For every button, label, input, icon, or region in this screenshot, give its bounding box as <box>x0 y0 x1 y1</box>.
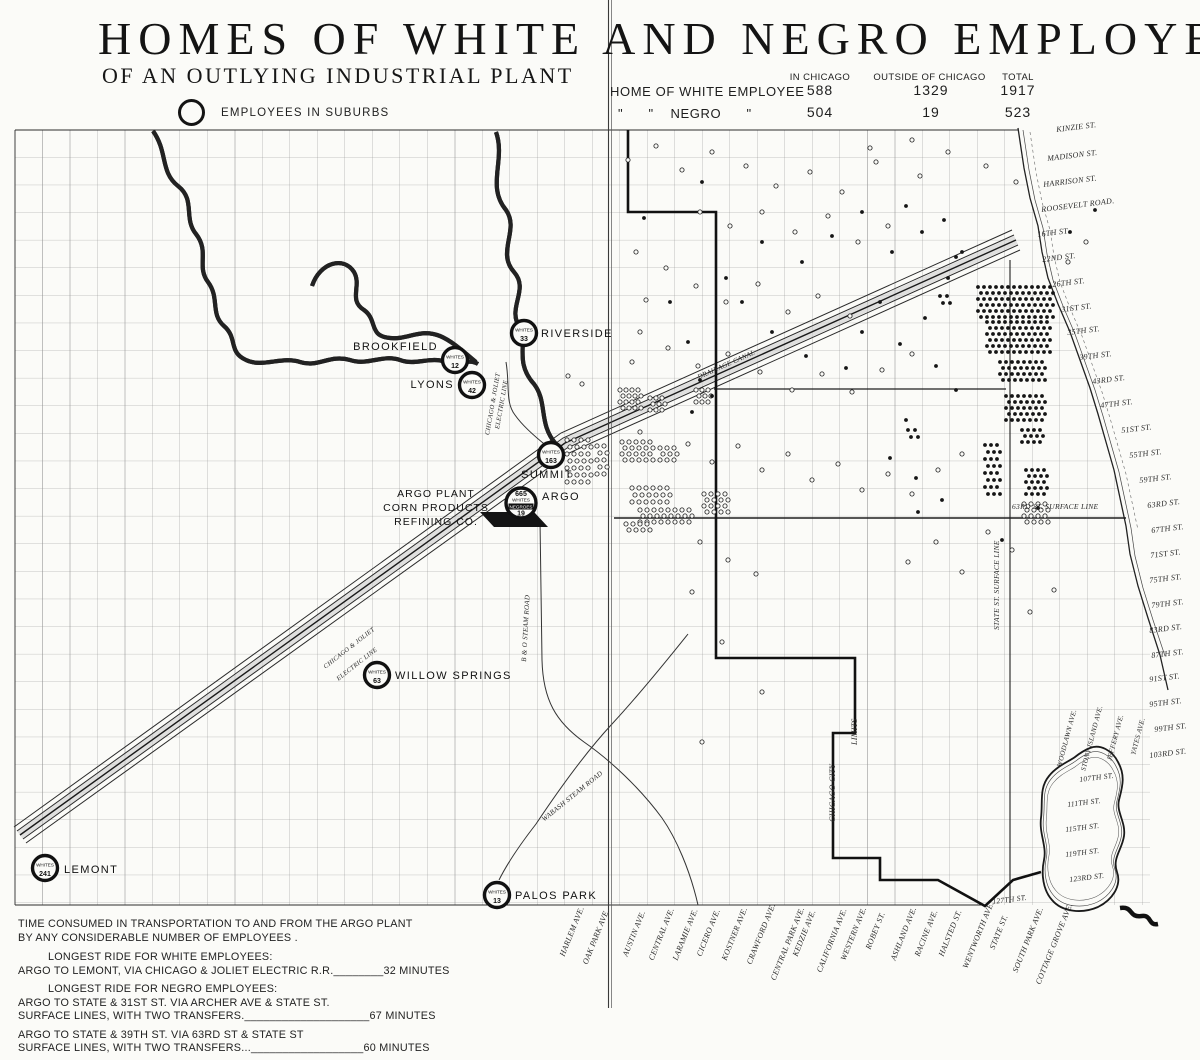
negro-employee-dot <box>989 471 993 475</box>
white-employee-dot <box>744 164 748 168</box>
line-label: STATE ST. SURFACE LINE <box>992 540 1002 630</box>
legend-label: EMPLOYEES IN SUBURBS <box>221 107 389 119</box>
negro-employee-dot <box>1037 400 1041 404</box>
negro-employee-dot <box>1030 297 1034 301</box>
negro-employee-dot <box>1024 338 1028 342</box>
negro-employee-dot <box>1039 303 1043 307</box>
negro-employee-dot <box>1009 320 1013 324</box>
white-employee-dot <box>760 468 764 472</box>
white-employee-dot <box>624 400 628 404</box>
negro-employee-dot <box>1039 332 1043 336</box>
white-employee-dot <box>673 520 677 524</box>
white-employee-dot <box>1084 240 1088 244</box>
negro-employee-dot <box>940 498 944 502</box>
negro-employee-dot <box>992 492 996 496</box>
white-employee-dot <box>774 184 778 188</box>
white-employee-dot <box>658 500 662 504</box>
white-employee-dot <box>639 406 643 410</box>
negro-employee-dot <box>1042 492 1046 496</box>
negro-employee-dot <box>1024 492 1028 496</box>
negro-employee-dot <box>770 330 774 334</box>
white-employee-dot <box>631 522 635 526</box>
negro-employee-dot <box>1040 406 1044 410</box>
negro-employee-dot <box>1000 285 1004 289</box>
white-employee-dot <box>934 540 938 544</box>
negro-employee-dot <box>1010 406 1014 410</box>
argo-negroes-label: NEGROES <box>510 504 533 509</box>
white-employee-dot <box>826 214 830 218</box>
negro-employee-dot <box>668 300 672 304</box>
white-employee-dot <box>1036 514 1040 518</box>
negro-employee-dot <box>1026 428 1030 432</box>
white-employee-dot <box>669 514 673 518</box>
negro-employee-dot <box>1018 297 1022 301</box>
white-employee-dot <box>709 504 713 508</box>
negro-employee-dot <box>1021 315 1025 319</box>
transportation-notes: TIME CONSUMED IN TRANSPORTATION TO AND F… <box>18 918 498 1056</box>
notes-line: ARGO TO STATE & 39TH ST. VIA 63RD ST & S… <box>18 1029 498 1043</box>
negro-employee-dot <box>1042 468 1046 472</box>
white-employee-dot <box>856 240 860 244</box>
suburb-count-label: WHITES <box>542 450 560 455</box>
negro-employee-dot <box>1009 332 1013 336</box>
white-employee-dot <box>623 458 627 462</box>
negro-employee-dot <box>1030 480 1034 484</box>
white-employee-dot <box>648 514 652 518</box>
negro-employee-dot <box>1019 412 1023 416</box>
white-employee-dot <box>624 388 628 392</box>
negro-employee-dot <box>1019 366 1023 370</box>
white-employee-dot <box>634 452 638 456</box>
negro-employee-dot <box>1019 378 1023 382</box>
negro-employee-dot <box>1033 332 1037 336</box>
negro-employee-dot <box>1001 378 1005 382</box>
negro-employee-dot <box>1042 350 1046 354</box>
white-employee-dot <box>624 522 628 526</box>
suburb-count: 63 <box>373 678 381 685</box>
white-employee-dot <box>644 298 648 302</box>
negro-employee-dot <box>1045 344 1049 348</box>
white-employee-dot <box>666 520 670 524</box>
white-employee-dot <box>786 310 790 314</box>
negro-employee-dot <box>740 300 744 304</box>
negro-employee-dot <box>994 297 998 301</box>
negro-employee-dot <box>724 276 728 280</box>
negro-employee-dot <box>1048 297 1052 301</box>
line-label: 63RD ST. SURFACE LINE <box>1012 502 1098 512</box>
negro-employee-dot <box>985 320 989 324</box>
negro-employee-dot <box>997 291 1001 295</box>
white-employee-dot <box>589 445 593 449</box>
negro-employee-dot <box>860 210 864 214</box>
negro-employee-dot <box>1001 366 1005 370</box>
white-employee-dot <box>626 158 630 162</box>
negro-employee-dot <box>1033 486 1037 490</box>
negro-employee-dot <box>1032 428 1036 432</box>
negro-employee-dot <box>1003 315 1007 319</box>
white-employee-dot <box>605 451 609 455</box>
white-employee-dot <box>582 459 586 463</box>
white-employee-dot <box>690 514 694 518</box>
white-employee-dot <box>910 138 914 142</box>
white-employee-dot <box>726 510 730 514</box>
negro-employee-dot <box>1000 297 1004 301</box>
negro-employee-dot <box>1009 315 1013 319</box>
negro-employee-dot <box>1042 326 1046 330</box>
white-employee-dot <box>836 462 840 466</box>
white-employee-dot <box>579 480 583 484</box>
negro-employee-dot <box>1045 486 1049 490</box>
white-employee-dot <box>960 570 964 574</box>
white-employee-dot <box>665 486 669 490</box>
negro-employee-dot <box>1036 309 1040 313</box>
negro-employee-dot <box>989 443 993 447</box>
white-employee-dot <box>726 558 730 562</box>
white-employee-dot <box>627 452 631 456</box>
negro-employee-dot <box>1012 326 1016 330</box>
white-employee-dot <box>655 514 659 518</box>
white-employee-dot <box>659 508 663 512</box>
negro-employee-dot <box>991 291 995 295</box>
negro-employee-dot <box>995 443 999 447</box>
suburb-count: 241 <box>39 871 51 878</box>
white-employee-dot <box>816 294 820 298</box>
negro-employee-dot <box>983 457 987 461</box>
white-employee-dot <box>886 224 890 228</box>
white-employee-dot <box>651 458 655 462</box>
white-employee-dot <box>683 514 687 518</box>
white-employee-dot <box>680 520 684 524</box>
negro-employee-dot <box>983 471 987 475</box>
white-employee-dot <box>639 394 643 398</box>
white-employee-dot <box>716 504 720 508</box>
white-employee-dot <box>906 560 910 564</box>
negro-employee-dot <box>1031 400 1035 404</box>
white-employee-dot <box>658 458 662 462</box>
negro-employee-dot <box>1039 315 1043 319</box>
negro-employee-dot <box>988 326 992 330</box>
white-employee-dot <box>698 210 702 214</box>
white-employee-dot <box>723 504 727 508</box>
negro-employee-dot <box>986 450 990 454</box>
negro-employee-dot <box>1015 320 1019 324</box>
white-employee-dot <box>644 446 648 450</box>
negro-employee-dot <box>1051 291 1055 295</box>
white-employee-dot <box>673 508 677 512</box>
negro-employee-dot <box>1027 332 1031 336</box>
negro-employee-dot <box>1021 332 1025 336</box>
white-employee-dot <box>686 442 690 446</box>
negro-employee-dot <box>1045 291 1049 295</box>
white-employee-dot <box>700 740 704 744</box>
white-employee-dot <box>641 452 645 456</box>
negro-employee-dot <box>982 297 986 301</box>
white-employee-dot <box>638 508 642 512</box>
white-employee-dot <box>790 388 794 392</box>
negro-employee-dot <box>1027 303 1031 307</box>
negro-employee-dot <box>992 464 996 468</box>
negro-employee-dot <box>1006 338 1010 342</box>
negro-employee-dot <box>1043 412 1047 416</box>
white-employee-dot <box>661 452 665 456</box>
negro-employee-dot <box>916 510 920 514</box>
negro-employee-dot <box>1045 320 1049 324</box>
white-employee-dot <box>633 406 637 410</box>
negro-employee-dot <box>985 291 989 295</box>
negro-employee-dot <box>1027 486 1031 490</box>
negro-employee-dot <box>1048 338 1052 342</box>
negro-employee-dot <box>1010 418 1014 422</box>
white-employee-dot <box>637 486 641 490</box>
white-employee-dot <box>918 174 922 178</box>
negro-employee-dot <box>1033 315 1037 319</box>
white-employee-dot <box>712 510 716 514</box>
argo-negroes-count: 19 <box>517 511 525 518</box>
negro-employee-dot <box>1045 332 1049 336</box>
notes-line: LONGEST RIDE FOR NEGRO EMPLOYEES: <box>48 983 498 997</box>
legend: EMPLOYEES IN SUBURBS <box>178 99 389 126</box>
white-employee-dot <box>582 445 586 449</box>
negro-employee-dot <box>1024 468 1028 472</box>
negro-employee-dot <box>994 326 998 330</box>
negro-employee-dot <box>1013 400 1017 404</box>
white-employee-dot <box>666 346 670 350</box>
negro-employee-dot <box>1012 338 1016 342</box>
negro-employee-dot <box>1043 378 1047 382</box>
negro-employee-dot <box>1016 360 1020 364</box>
white-employee-dot <box>666 508 670 512</box>
negro-employee-dot <box>1018 350 1022 354</box>
white-employee-dot <box>589 459 593 463</box>
negro-employee-dot <box>1012 309 1016 313</box>
negro-employee-dot <box>1040 360 1044 364</box>
white-employee-dot <box>633 493 637 497</box>
negro-employee-dot <box>1030 309 1034 313</box>
negro-employee-dot <box>1051 315 1055 319</box>
white-employee-dot <box>605 465 609 469</box>
white-employee-dot <box>651 486 655 490</box>
white-employee-dot <box>654 144 658 148</box>
negro-employee-dot <box>1045 474 1049 478</box>
white-employee-dot <box>706 400 710 404</box>
white-employee-dot <box>712 498 716 502</box>
notes-line: ARGO TO LEMONT, VIA CHICAGO & JOLIET ELE… <box>18 965 498 979</box>
negro-employee-dot <box>1006 350 1010 354</box>
notes-line: TIME CONSUMED IN TRANSPORTATION TO AND F… <box>18 918 498 932</box>
negro-employee-dot <box>1006 285 1010 289</box>
white-employee-dot <box>1046 520 1050 524</box>
negro-employee-dot <box>1018 338 1022 342</box>
negro-employee-dot <box>954 255 958 259</box>
white-employee-dot <box>630 486 634 490</box>
white-employee-dot <box>723 492 727 496</box>
negro-employee-dot <box>804 354 808 358</box>
negro-employee-dot <box>945 294 949 298</box>
negro-employee-dot <box>998 464 1002 468</box>
negro-employee-dot <box>1031 366 1035 370</box>
negro-employee-dot <box>1033 320 1037 324</box>
negro-employee-dot <box>995 485 999 489</box>
negro-employee-dot <box>888 456 892 460</box>
white-employee-dot <box>637 458 641 462</box>
white-employee-dot <box>675 452 679 456</box>
negro-employee-dot <box>1030 326 1034 330</box>
negro-employee-dot <box>1036 338 1040 342</box>
white-employee-dot <box>565 438 569 442</box>
negro-employee-dot <box>1048 350 1052 354</box>
suburb-name: LEMONT <box>64 864 118 876</box>
negro-employee-dot <box>1006 309 1010 313</box>
white-employee-dot <box>638 330 642 334</box>
negro-employee-dot <box>979 315 983 319</box>
negro-employee-dot <box>997 344 1001 348</box>
negro-employee-dot <box>1028 360 1032 364</box>
white-employee-dot <box>648 452 652 456</box>
white-employee-dot <box>840 190 844 194</box>
negro-employee-dot <box>1043 366 1047 370</box>
negro-employee-dot <box>1032 440 1036 444</box>
negro-employee-dot <box>1036 285 1040 289</box>
white-employee-dot <box>672 446 676 450</box>
negro-employee-dot <box>938 294 942 298</box>
white-employee-dot <box>659 520 663 524</box>
negro-employee-dot <box>1027 474 1031 478</box>
white-employee-dot <box>910 352 914 356</box>
page-subtitle: OF AN OUTLYING INDUSTRIAL PLANT <box>102 63 574 89</box>
negro-employee-dot <box>1025 378 1029 382</box>
negro-employee-dot <box>989 485 993 489</box>
negro-employee-dot <box>1027 291 1031 295</box>
white-employee-dot <box>598 465 602 469</box>
white-employee-dot <box>645 522 649 526</box>
negro-employee-dot <box>1015 303 1019 307</box>
negro-employee-dot <box>1023 434 1027 438</box>
negro-employee-dot <box>988 285 992 289</box>
white-employee-dot <box>651 500 655 504</box>
white-employee-dot <box>575 459 579 463</box>
white-employee-dot <box>602 458 606 462</box>
negro-employee-dot <box>1004 394 1008 398</box>
negro-employee-dot <box>960 250 964 254</box>
white-employee-dot <box>1029 514 1033 518</box>
white-employee-dot <box>754 572 758 576</box>
white-employee-dot <box>760 690 764 694</box>
negro-employee-dot <box>1016 394 1020 398</box>
white-employee-dot <box>793 230 797 234</box>
white-employee-dot <box>602 444 606 448</box>
negro-employee-dot <box>913 428 917 432</box>
white-employee-dot <box>660 396 664 400</box>
white-employee-dot <box>595 458 599 462</box>
white-employee-dot <box>634 528 638 532</box>
white-employee-dot <box>648 408 652 412</box>
negro-employee-dot <box>1033 303 1037 307</box>
negro-employee-dot <box>1007 400 1011 404</box>
white-employee-dot <box>1028 610 1032 614</box>
white-employee-dot <box>672 458 676 462</box>
white-employee-dot <box>687 508 691 512</box>
suburb-count: 33 <box>520 336 528 343</box>
white-employee-dot <box>586 438 590 442</box>
negro-employee-dot <box>1016 418 1020 422</box>
negro-employee-dot <box>916 435 920 439</box>
negro-employee-dot <box>1040 418 1044 422</box>
negro-employee-dot <box>1020 428 1024 432</box>
white-employee-dot <box>663 402 667 406</box>
stats-row-white-label: HOME OF WHITE EMPLOYEE <box>610 84 805 99</box>
negro-employee-dot <box>800 260 804 264</box>
negro-employee-dot <box>992 450 996 454</box>
negro-employee-dot <box>1024 285 1028 289</box>
negro-employee-dot <box>1024 350 1028 354</box>
suburb-name: SUMMIT <box>521 469 573 481</box>
negro-employee-dot <box>1022 394 1026 398</box>
white-employee-dot <box>627 528 631 532</box>
negro-employee-dot <box>1024 297 1028 301</box>
negro-employee-dot <box>1004 360 1008 364</box>
negro-employee-dot <box>997 320 1001 324</box>
argo-whites-label: WHITES <box>512 498 530 503</box>
negro-employee-dot <box>1018 309 1022 313</box>
white-employee-dot <box>648 440 652 444</box>
white-employee-dot <box>641 528 645 532</box>
negro-employee-dot <box>994 309 998 313</box>
white-employee-dot <box>627 394 631 398</box>
negro-employee-dot <box>1000 350 1004 354</box>
white-employee-dot <box>662 514 666 518</box>
white-employee-dot <box>648 396 652 400</box>
white-employee-dot <box>850 390 854 394</box>
white-employee-dot <box>586 480 590 484</box>
negro-employee-dot <box>1036 480 1040 484</box>
notes-line: SURFACE LINES, WITH TWO TRANSFERS...____… <box>18 1042 498 1056</box>
white-employee-dot <box>697 394 701 398</box>
white-employee-dot <box>880 368 884 372</box>
negro-employee-dot <box>985 332 989 336</box>
negro-employee-dot <box>1031 412 1035 416</box>
negro-employee-dot <box>988 309 992 313</box>
negro-employee-dot <box>904 204 908 208</box>
negro-employee-dot <box>1034 372 1038 376</box>
white-employee-dot <box>634 440 638 444</box>
negro-employee-dot <box>1024 480 1028 484</box>
notes-line: BY ANY CONSIDERABLE NUMBER OF EMPLOYEES … <box>18 932 498 946</box>
negro-employee-dot <box>1027 320 1031 324</box>
negro-employee-dot <box>1000 326 1004 330</box>
negro-employee-dot <box>1003 303 1007 307</box>
negro-employee-dot <box>991 332 995 336</box>
stats-white-in-chicago: 588 <box>798 82 842 98</box>
suburb-count-label: WHITES <box>368 670 386 675</box>
white-employee-dot <box>719 510 723 514</box>
suburb-count-label: WHITES <box>515 328 533 333</box>
negro-employee-dot <box>1048 309 1052 313</box>
white-employee-dot <box>664 266 668 270</box>
negro-employee-dot <box>1027 344 1031 348</box>
negro-employee-dot <box>1034 394 1038 398</box>
negro-employee-dot <box>991 315 995 319</box>
white-employee-dot <box>946 150 950 154</box>
white-employee-dot <box>565 452 569 456</box>
negro-employee-dot <box>1037 412 1041 416</box>
negro-employee-dot <box>710 394 714 398</box>
white-employee-dot <box>726 352 730 356</box>
negro-employee-dot <box>1021 291 1025 295</box>
white-employee-dot <box>820 372 824 376</box>
negro-employee-dot <box>1030 492 1034 496</box>
negro-employee-dot <box>1009 344 1013 348</box>
white-employee-dot <box>874 160 878 164</box>
